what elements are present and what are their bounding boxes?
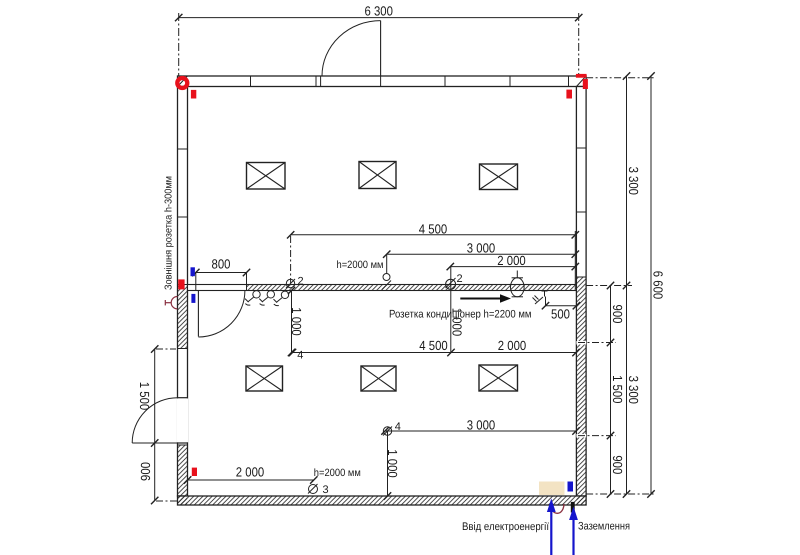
svg-text:3: 3 [323, 484, 329, 496]
svg-text:900: 900 [138, 462, 153, 481]
svg-text:4 500: 4 500 [419, 338, 447, 353]
svg-text:1 000: 1 000 [289, 307, 304, 335]
svg-text:3 300: 3 300 [626, 167, 641, 195]
svg-text:1 000: 1 000 [385, 449, 400, 477]
svg-text:2 000: 2 000 [236, 465, 264, 480]
svg-text:4: 4 [297, 350, 303, 362]
svg-text:2 000: 2 000 [498, 338, 526, 353]
svg-text:500: 500 [551, 306, 570, 321]
svg-text:2: 2 [298, 276, 304, 288]
svg-text:6 600: 6 600 [651, 271, 666, 299]
svg-text:3 300: 3 300 [626, 376, 641, 404]
svg-text:900: 900 [610, 305, 625, 324]
svg-text:3 000: 3 000 [467, 418, 495, 433]
svg-text:Розетка кондиціонер h=2200 мм: Розетка кондиціонер h=2200 мм [389, 309, 532, 321]
svg-text:Зовнішня розетка h-300мм: Зовнішня розетка h-300мм [164, 176, 175, 290]
svg-text:800: 800 [212, 256, 231, 271]
svg-text:1 500: 1 500 [137, 382, 152, 410]
svg-text:Заземлення: Заземлення [578, 521, 630, 533]
svg-text:1 500: 1 500 [610, 375, 625, 403]
svg-text:900: 900 [610, 455, 625, 474]
svg-text:h=2000 мм: h=2000 мм [337, 259, 384, 271]
svg-text:4 500: 4 500 [419, 221, 447, 236]
svg-text:2 000: 2 000 [497, 253, 525, 268]
svg-text:6 300: 6 300 [365, 3, 393, 18]
svg-text:4: 4 [395, 421, 401, 433]
svg-text:Ввід електроенергії: Ввід електроенергії [462, 521, 549, 533]
svg-text:2: 2 [457, 273, 463, 285]
svg-text:h=2000 мм: h=2000 мм [314, 467, 361, 479]
svg-text:3 000: 3 000 [467, 241, 495, 256]
